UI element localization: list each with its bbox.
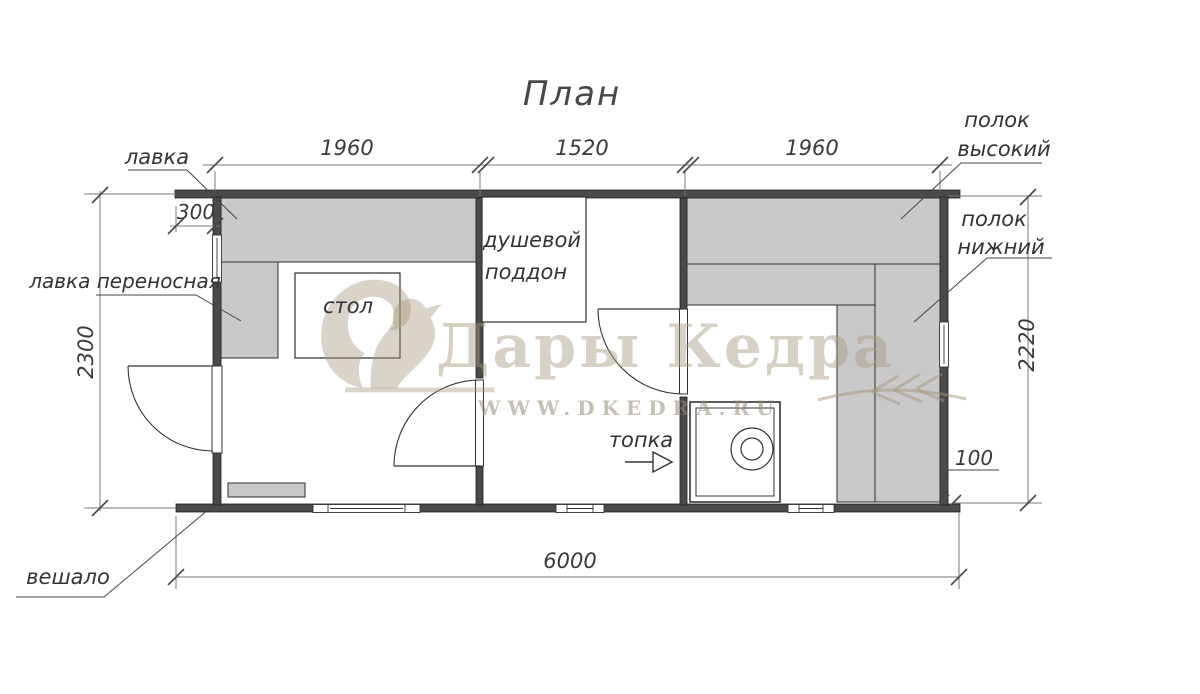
- page-title: План: [523, 74, 621, 114]
- label-hanger: вешало: [26, 565, 110, 589]
- dim-top-segment-3: 1960: [785, 136, 838, 160]
- wall-partition-2-seg2: [680, 397, 687, 505]
- door1-arc: [394, 380, 480, 466]
- door2-leaf: [680, 309, 688, 394]
- wall-right-seg1: [940, 197, 948, 322]
- firebox-arrow-icon: [625, 452, 672, 472]
- label-shelf-low-line2: нижний: [957, 235, 1044, 259]
- door2-arc: [598, 309, 683, 394]
- door1-leaf: [476, 380, 484, 466]
- wall-partition-2-seg1: [680, 198, 687, 309]
- floor-plan-canvas: План 1960 1520 1960 300 2300 2220 6000 1…: [0, 0, 1200, 694]
- label-firebox: топка: [609, 428, 673, 452]
- label-shower-line1: душевой: [483, 228, 581, 252]
- sauna-shelf-low: [837, 305, 875, 502]
- label-shelf-high-line1: полок: [964, 108, 1030, 132]
- wall-partition-1-seg2: [476, 465, 483, 505]
- wall-left-seg2: [213, 282, 221, 366]
- wall-left-seg3: [213, 452, 221, 505]
- stove: [690, 402, 780, 502]
- label-shelf-low-line1: полок: [961, 207, 1027, 231]
- bench-portable: [221, 262, 278, 358]
- dim-top-segment-2: 1520: [555, 136, 608, 160]
- entry-door-leaf: [212, 366, 222, 453]
- bench-top: [221, 198, 476, 262]
- stove-ring-inner: [741, 438, 763, 460]
- label-portable-bench: лавка переносная: [29, 269, 221, 293]
- dim-wall-thickness: 100: [955, 446, 993, 470]
- sauna-shelf-mid: [687, 264, 875, 305]
- label-bench: лавка: [125, 145, 189, 169]
- dim-total-length: 6000: [543, 549, 596, 573]
- dim-left-width: 2300: [74, 325, 98, 378]
- dim-porch-depth: 300: [177, 200, 215, 224]
- label-table: стол: [323, 294, 373, 318]
- dim-right-width: 2220: [1015, 318, 1039, 371]
- sauna-shelf-high: [687, 198, 940, 264]
- dim-top-segment-1: 1960: [320, 136, 373, 160]
- label-shower-line2: поддон: [485, 260, 567, 284]
- label-shelf-high-line2: высокий: [957, 137, 1050, 161]
- entry-door-arc: [128, 366, 213, 451]
- hanger-rack: [228, 483, 305, 497]
